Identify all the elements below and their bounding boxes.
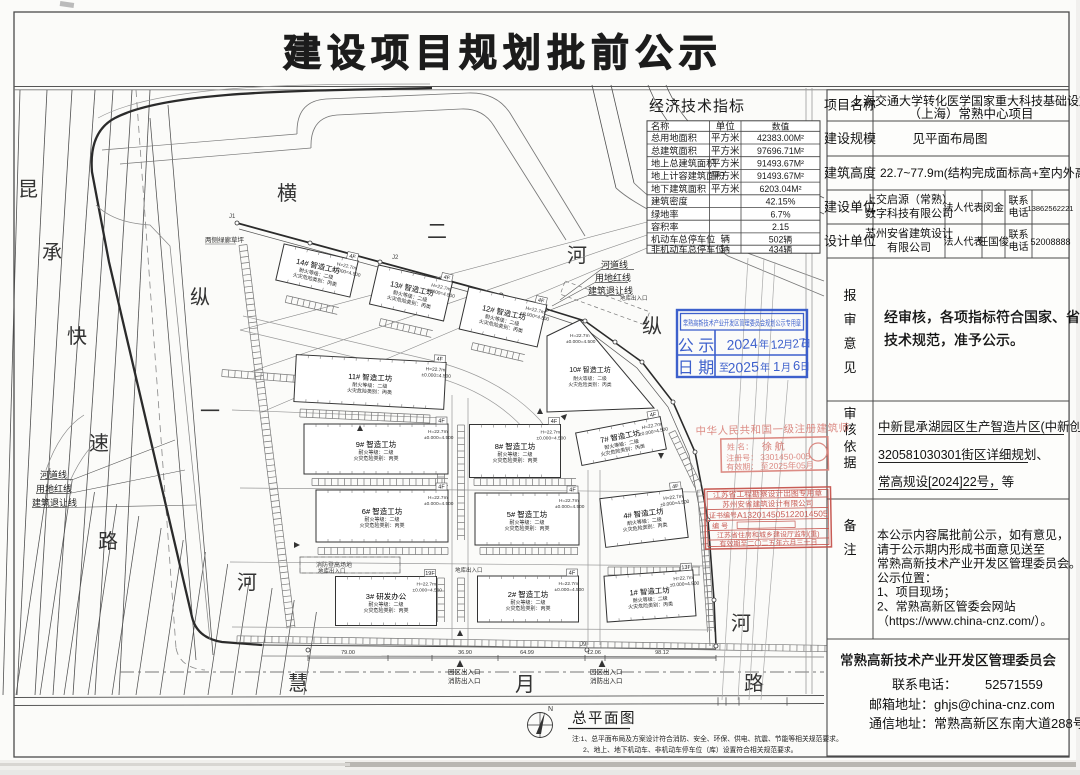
svg-text:2、常熟高新区管委会网站: 2、常熟高新区管委会网站 (877, 599, 1016, 614)
svg-text:64.99: 64.99 (520, 650, 534, 656)
svg-text:J9: J9 (580, 642, 587, 648)
svg-text:H=22.7m: H=22.7m (559, 498, 579, 504)
svg-text:建筑退让线: 建筑退让线 (588, 285, 633, 296)
svg-text:地库出入口: 地库出入口 (620, 294, 648, 302)
svg-text:2024: 2024 (726, 335, 758, 353)
svg-text:年: 年 (759, 338, 769, 351)
svg-text:纵: 纵 (190, 286, 210, 309)
svg-text:江苏省工程勘察设计出图专用章: 江苏省工程勘察设计出图专用章 (713, 488, 823, 500)
svg-text:承: 承 (42, 241, 62, 264)
svg-text:耐火等级：二级: 耐火等级：二级 (364, 516, 399, 523)
svg-text:非机动车总停车位: 非机动车总停车位 (651, 244, 725, 255)
svg-text:河: 河 (731, 612, 751, 635)
svg-text:报: 报 (843, 288, 856, 303)
svg-text:98.12: 98.12 (655, 650, 669, 656)
svg-text:1: 1 (773, 359, 780, 374)
svg-text:年: 年 (760, 361, 770, 374)
svg-text:月: 月 (515, 674, 535, 696)
svg-text:绿地率: 绿地率 (651, 208, 679, 219)
svg-text:4F: 4F (438, 485, 445, 491)
svg-text:注册号：: 注册号： (726, 452, 758, 463)
svg-text:河: 河 (237, 571, 257, 594)
svg-text:路: 路 (98, 530, 118, 553)
svg-text:地上总建筑面积: 地上总建筑面积 (651, 158, 715, 169)
svg-text:±0.000=4.500: ±0.000=4.500 (413, 588, 443, 594)
svg-text:耐火等级：二级: 耐火等级：二级 (368, 601, 403, 608)
svg-text:平方米: 平方米 (711, 158, 740, 170)
svg-text:±0.000=4.500: ±0.000=4.500 (424, 435, 454, 441)
svg-text:中新昆承湖园区生产智造片区(中新创智岛): 中新昆承湖园区生产智造片区(中新创智岛) (878, 419, 1080, 434)
svg-text:97696.71M²: 97696.71M² (757, 146, 804, 156)
svg-text:至2025年05月: 至2025年05月 (760, 460, 814, 471)
svg-text:平方米: 平方米 (711, 132, 740, 144)
svg-text:日 期: 日 期 (678, 359, 714, 377)
svg-text:见平面布局图: 见平面布局图 (912, 132, 987, 146)
svg-text:本公示内容属批前公示，如有意见，: 本公示内容属批前公示，如有意见， (877, 527, 1069, 542)
svg-text:依: 依 (843, 439, 856, 454)
svg-text:苏州安省建筑设计: 苏州安省建筑设计 (865, 226, 953, 240)
svg-text:据: 据 (843, 455, 856, 470)
svg-text:火灾危险类别：丙类: 火灾危险类别：丙类 (504, 525, 549, 532)
svg-text:502辆: 502辆 (769, 234, 793, 245)
svg-text:91493.67M²: 91493.67M² (757, 159, 804, 169)
svg-text:电话: 电话 (1009, 240, 1029, 253)
svg-text:平方米: 平方米 (711, 170, 740, 182)
svg-text:36.90: 36.90 (458, 650, 472, 656)
svg-text:公示位置：: 公示位置： (877, 570, 937, 585)
svg-text:52571559: 52571559 (985, 677, 1043, 692)
svg-text:技术规范，准予公示。: 技术规范，准予公示。 (884, 332, 1024, 348)
svg-text:常熟高新技术产业开发区管理委员会: 常熟高新技术产业开发区管理委员会 (840, 652, 1056, 668)
svg-text:±0.000=4.500: ±0.000=4.500 (537, 436, 567, 442)
svg-text:9# 智造工坊: 9# 智造工坊 (356, 439, 397, 449)
svg-text:消防出入口: 消防出入口 (448, 676, 481, 685)
svg-text:6203.04M²: 6203.04M² (759, 184, 801, 194)
svg-text:慧: 慧 (288, 672, 308, 695)
svg-text:请于公示期内形成书面意见送至: 请于公示期内形成书面意见送至 (877, 541, 1045, 556)
svg-text:河: 河 (567, 244, 587, 267)
svg-text:任国俊: 任国俊 (978, 235, 1010, 248)
svg-text:建筑退让线: 建筑退让线 (32, 497, 77, 508)
svg-text:2# 智造工坊: 2# 智造工坊 (508, 589, 549, 599)
svg-text:横: 横 (277, 182, 297, 205)
svg-text:火灾危险类别：丙类: 火灾危险类别：丙类 (505, 605, 550, 612)
svg-text:19F: 19F (425, 571, 435, 577)
svg-text:意: 意 (843, 336, 856, 351)
svg-text:数值: 数值 (772, 121, 790, 132)
svg-text:耐火等级：二级: 耐火等级：二级 (497, 451, 532, 458)
svg-text:通信地址：常熟高新区东南大道288号: 通信地址：常熟高新区东南大道288号 (869, 716, 1080, 731)
svg-text:79.00: 79.00 (341, 650, 355, 656)
svg-text:单位: 单位 (716, 121, 736, 133)
svg-text:建筑密度: 建筑密度 (651, 196, 688, 207)
svg-text:机动车总停车位: 机动车总停车位 (651, 234, 715, 245)
svg-text:4F: 4F (569, 488, 576, 494)
svg-text:火灾危险类别：丙类: 火灾危险类别：丙类 (492, 457, 537, 464)
svg-text:平方米: 平方米 (711, 145, 740, 157)
svg-text:审: 审 (843, 312, 856, 327)
svg-text:平方米: 平方米 (711, 183, 740, 195)
svg-text:有限公司: 有限公司 (887, 240, 931, 254)
svg-text:H=22.7m: H=22.7m (541, 430, 561, 436)
svg-text:园区出入口: 园区出入口 (448, 667, 481, 676)
svg-text:常熟高新技术产业开发区管理委员会。: 常熟高新技术产业开发区管理委员会。 (877, 556, 1080, 571)
svg-text:审: 审 (843, 406, 856, 421)
svg-text:建筑高度: 建筑高度 (824, 166, 876, 181)
svg-text:园区出入口: 园区出入口 (590, 667, 623, 676)
svg-text:J1: J1 (229, 214, 236, 220)
svg-text:联系: 联系 (1009, 195, 1029, 207)
svg-text:邮箱地址：ghjs@china-cnz.com: 邮箱地址：ghjs@china-cnz.com (869, 697, 1055, 712)
svg-text:8# 智造工坊: 8# 智造工坊 (495, 441, 536, 451)
svg-text:3# 研发办公: 3# 研发办公 (366, 591, 407, 601)
svg-text:河道线: 河道线 (601, 259, 628, 270)
svg-text:2025: 2025 (727, 358, 759, 376)
svg-text:姓 名：: 姓 名： (727, 441, 753, 452)
svg-text:42.15%: 42.15% (766, 197, 796, 207)
svg-text:一: 一 (200, 401, 220, 423)
svg-text:备: 备 (843, 518, 856, 533)
svg-text:火灾危险类别：丙类: 火灾危险类别：丙类 (359, 522, 404, 529)
svg-text:常熟高新技术产业开发区管理委员会规划公示专用章: 常熟高新技术产业开发区管理委员会规划公示专用章 (683, 319, 801, 328)
svg-text:（https://www.china-cnz.com/）。: （https://www.china-cnz.com/）。 (877, 614, 1052, 628)
svg-text:地下建筑面积: 地下建筑面积 (651, 183, 706, 194)
svg-text:月: 月 (781, 362, 791, 374)
svg-text:昆: 昆 (18, 179, 38, 201)
svg-text:N: N (548, 706, 553, 713)
svg-text:H=22.7m: H=22.7m (426, 366, 446, 373)
svg-text:（上海）常熟中心项目: （上海）常熟中心项目 (908, 106, 1033, 121)
svg-text:容积率: 容积率 (651, 221, 679, 232)
svg-text:河道线: 河道线 (40, 469, 67, 480)
svg-text:320581030301街区详细规划、: 320581030301街区详细规划、 (878, 447, 1049, 462)
svg-text:上海交通大学转化医学国家重大科技基础设施: 上海交通大学转化医学国家重大科技基础设施 (851, 93, 1080, 108)
svg-text:辆: 辆 (720, 234, 730, 246)
svg-text:火灾危险类别：丙类: 火灾危险类别：丙类 (568, 381, 611, 388)
svg-text:联系: 联系 (1009, 229, 1029, 241)
svg-text:公 示: 公 示 (678, 338, 714, 355)
svg-text:A132014505122014505: A132014505122014505 (737, 508, 828, 520)
svg-text:建设规模: 建设规模 (824, 131, 876, 146)
svg-text:快: 快 (67, 325, 87, 348)
svg-text:H=22.7m: H=22.7m (417, 582, 437, 588)
svg-text:上交启源（常熟）: 上交启源（常熟） (865, 192, 953, 206)
svg-text:路: 路 (744, 672, 764, 695)
svg-text:日: 日 (800, 362, 810, 373)
svg-text:22.7~77.9m(结构完成面标高+室内外高差): 22.7~77.9m(结构完成面标高+室内外高差) (880, 165, 1080, 180)
svg-text:总用地面积: 总用地面积 (651, 132, 697, 143)
svg-text:法人代表: 法人代表 (944, 201, 984, 214)
svg-text:纵: 纵 (642, 315, 662, 338)
svg-text:编 号: 编 号 (712, 521, 728, 530)
svg-text:火灾危险类别：丙类: 火灾危险类别：丙类 (363, 607, 408, 614)
svg-text:苏州安省建筑设计有限公司: 苏州安省建筑设计有限公司 (722, 498, 813, 510)
svg-text:H=22.7m: H=22.7m (570, 333, 590, 339)
svg-text:闵金: 闵金 (983, 201, 1004, 214)
svg-text:2、地上、地下机动车、非机动车停车位（库）设置符合相关规范要: 2、地上、地下机动车、非机动车停车位（库）设置符合相关规范要求。 (583, 745, 797, 754)
svg-text:见: 见 (843, 360, 856, 375)
svg-text:经审核，各项指标符合国家、省有关: 经审核，各项指标符合国家、省有关 (884, 309, 1080, 325)
svg-text:12.06: 12.06 (587, 650, 601, 656)
svg-text:用地红线: 用地红线 (36, 483, 72, 494)
svg-text:耐火等级：二级: 耐火等级：二级 (510, 599, 545, 606)
svg-text:5# 智造工坊: 5# 智造工坊 (507, 509, 548, 519)
svg-text:总建筑面积: 总建筑面积 (651, 145, 697, 156)
svg-text:耐火等级：二级: 耐火等级：二级 (509, 519, 544, 526)
svg-text:辆: 辆 (720, 244, 730, 256)
svg-text:电话: 电话 (1009, 206, 1029, 219)
svg-text:434辆: 434辆 (769, 244, 793, 255)
svg-text:±0.000=4.500: ±0.000=4.500 (566, 339, 596, 345)
svg-text:4F: 4F (569, 571, 576, 577)
svg-text:注:1、总平面布局及方案设计符合消防、安全、环保、供电、抗震: 注:1、总平面布局及方案设计符合消防、安全、环保、供电、抗震、节能等相关规范要求… (572, 734, 843, 743)
svg-text:地库出入口: 地库出入口 (318, 567, 346, 575)
svg-text:13F: 13F (681, 565, 692, 572)
svg-text:总平面图: 总平面图 (572, 710, 636, 727)
svg-text:10# 智造工坊: 10# 智造工坊 (569, 365, 611, 374)
svg-text:二: 二 (427, 221, 447, 243)
svg-text:常高规设[2024]22号，等: 常高规设[2024]22号，等 (878, 474, 1014, 489)
svg-text:名称: 名称 (651, 121, 669, 132)
svg-text:52008888: 52008888 (1030, 237, 1070, 247)
svg-text:91493.67M²: 91493.67M² (757, 171, 804, 181)
svg-text:H=22.7m: H=22.7m (428, 429, 448, 435)
svg-text:6.7%: 6.7% (770, 209, 790, 219)
svg-text:有效期：: 有效期： (726, 461, 758, 472)
svg-text:1、项目现场；: 1、项目现场； (877, 585, 956, 599)
svg-text:6# 智造工坊: 6# 智造工坊 (362, 506, 403, 516)
svg-text:消防登高场地: 消防登高场地 (316, 561, 352, 569)
svg-text:±0.000=4.500: ±0.000=4.500 (555, 587, 585, 593)
svg-text:数字科技有限公司: 数字科技有限公司 (865, 206, 953, 220)
svg-text:42383.00M²: 42383.00M² (757, 133, 804, 143)
svg-text:两侧绿廊草坪: 两侧绿廊草坪 (205, 235, 245, 244)
svg-text:13862562221: 13862562221 (1028, 204, 1074, 213)
svg-text:±0.000=4.500: ±0.000=4.500 (424, 501, 454, 507)
svg-text:H=22.7m: H=22.7m (428, 495, 448, 501)
svg-text:联系电话：: 联系电话： (892, 677, 957, 692)
svg-text:H=22.7m: H=22.7m (559, 581, 579, 587)
svg-text:耐火等级：二级: 耐火等级：二级 (573, 375, 607, 382)
svg-text:火灾危险类别：丙类: 火灾危险类别：丙类 (353, 455, 398, 462)
svg-text:建设项目规划批前公示: 建设项目规划批前公示 (283, 33, 723, 75)
svg-text:地库出入口: 地库出入口 (455, 566, 483, 574)
svg-text:2.15: 2.15 (772, 222, 789, 232)
svg-text:±0.000=4.500: ±0.000=4.500 (555, 504, 585, 510)
svg-text:消防出入口: 消防出入口 (590, 676, 623, 685)
svg-text:4F: 4F (551, 419, 558, 425)
svg-text:速: 速 (89, 432, 109, 455)
svg-text:注: 注 (843, 542, 856, 557)
svg-text:4F: 4F (438, 419, 445, 425)
svg-text:用地红线: 用地红线 (595, 272, 631, 283)
svg-text:日: 日 (801, 339, 811, 350)
svg-text:4F: 4F (436, 356, 443, 362)
svg-text:J2: J2 (392, 255, 399, 261)
svg-text:经济技术指标: 经济技术指标 (649, 98, 745, 115)
svg-text:耐火等级：二级: 耐火等级：二级 (358, 449, 393, 456)
